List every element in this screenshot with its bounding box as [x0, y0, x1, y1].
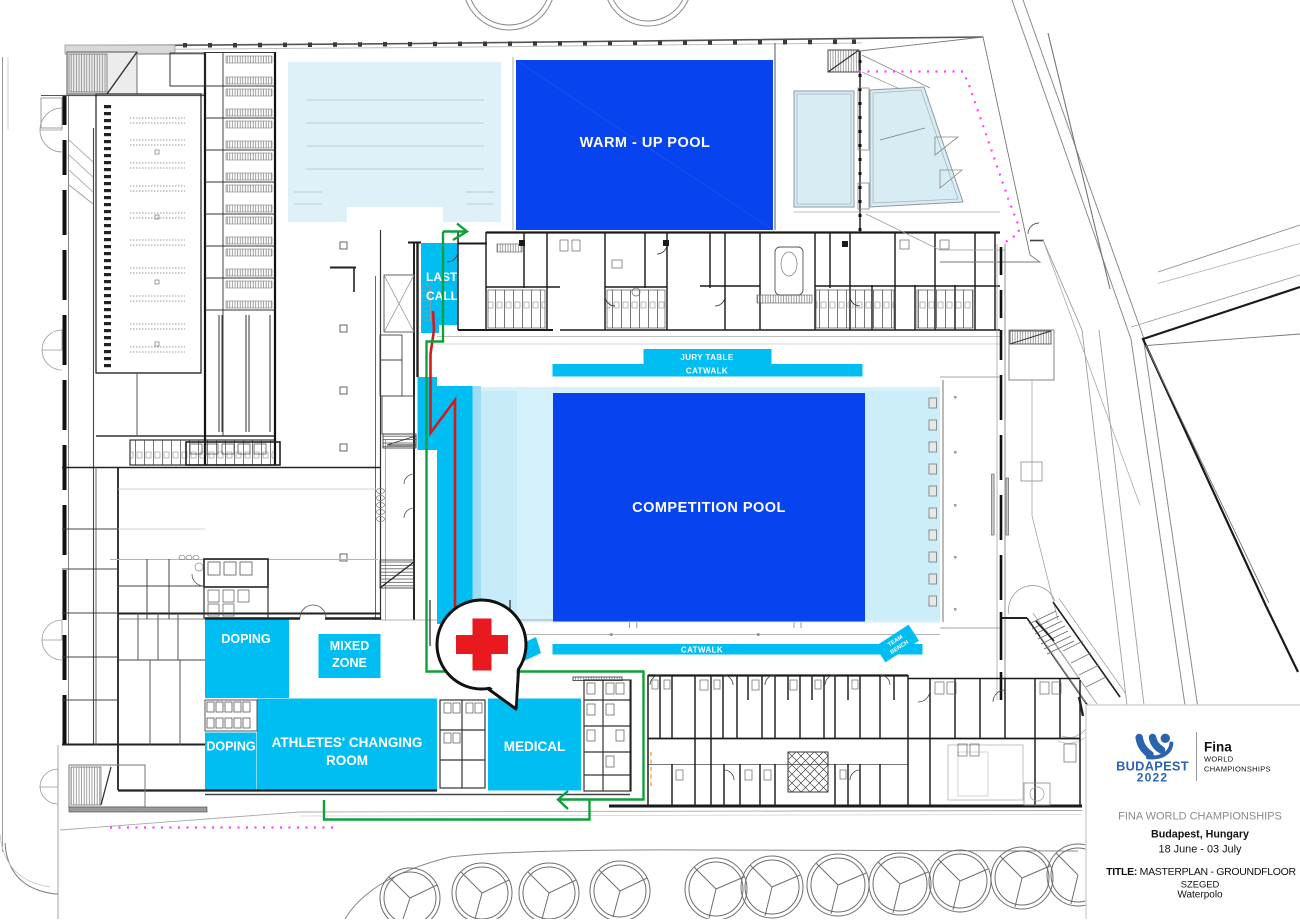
svg-text:2022: 2022	[1137, 771, 1169, 785]
svg-text:Waterpolo: Waterpolo	[1177, 890, 1223, 901]
svg-text:MIXED: MIXED	[330, 639, 370, 653]
svg-text:WARM - UP POOL: WARM - UP POOL	[580, 135, 711, 151]
svg-text:CHAMPIONSHIPS: CHAMPIONSHIPS	[1204, 765, 1271, 774]
svg-text:CATWALK: CATWALK	[686, 367, 728, 376]
svg-text:ZONE: ZONE	[332, 656, 367, 670]
svg-text:DOPING: DOPING	[206, 740, 255, 754]
svg-text:TITLE: MASTERPLAN - GROUNDFLOO: TITLE: MASTERPLAN - GROUNDFLOOR	[1106, 866, 1296, 878]
svg-text:FINA WORLD CHAMPIONSHIPS: FINA WORLD CHAMPIONSHIPS	[1118, 811, 1282, 823]
svg-text:COMPETITION POOL: COMPETITION POOL	[632, 500, 786, 516]
svg-text:DOPING: DOPING	[221, 632, 270, 646]
svg-text:MEDICAL: MEDICAL	[504, 739, 566, 754]
svg-text:Fina: Fina	[1204, 740, 1232, 755]
svg-text:18 June - 03 July: 18 June - 03 July	[1159, 844, 1242, 856]
svg-text:Budapest, Hungary: Budapest, Hungary	[1151, 829, 1249, 841]
svg-text:ATHLETES' CHANGING: ATHLETES' CHANGING	[272, 735, 423, 750]
svg-text:JURY TABLE: JURY TABLE	[680, 353, 733, 362]
svg-text:SZEGED: SZEGED	[1181, 879, 1220, 890]
svg-text:WORLD: WORLD	[1204, 755, 1234, 764]
svg-text:CATWALK: CATWALK	[681, 646, 723, 655]
svg-text:ROOM: ROOM	[326, 753, 368, 768]
